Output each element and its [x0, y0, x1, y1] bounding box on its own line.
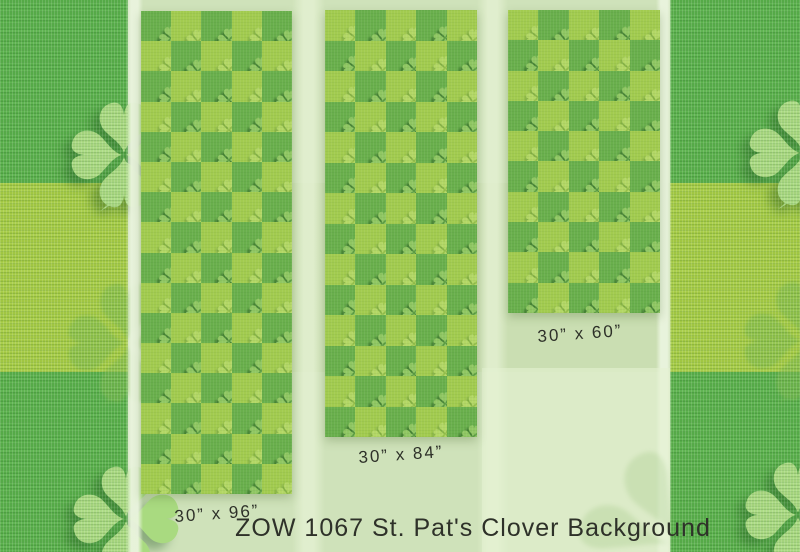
- pattern-cell: [416, 346, 446, 377]
- clover-icon: [356, 285, 385, 315]
- clover-icon: [262, 192, 292, 222]
- clover-icon: [325, 346, 355, 376]
- pattern-cell: [141, 434, 171, 464]
- clover-icon: [539, 10, 568, 40]
- pattern-cell: [171, 102, 201, 132]
- clover-icon: [630, 222, 660, 252]
- pattern-cell: [262, 222, 292, 252]
- clover-icon: [388, 12, 414, 39]
- pattern-cell: [447, 193, 477, 224]
- pattern-cell: [508, 192, 538, 222]
- clover-icon: [203, 375, 229, 402]
- pattern-cell: [447, 224, 477, 255]
- pattern-cell: [630, 101, 660, 131]
- clover-icon: [417, 102, 445, 131]
- pattern-cell: [508, 101, 538, 131]
- clover-icon: [388, 378, 414, 405]
- clover-icon: [356, 376, 385, 406]
- clover-icon: [508, 161, 538, 191]
- clover-icon: [447, 102, 477, 133]
- clover-icon: [262, 132, 292, 162]
- clover-icon: [233, 374, 261, 403]
- clover-icon: [600, 71, 628, 100]
- clover-icon: [262, 434, 292, 464]
- clover-icon: [571, 133, 597, 160]
- pattern-cell: [416, 163, 446, 194]
- pattern-cell: [538, 71, 568, 101]
- pattern-cell: [538, 252, 568, 282]
- clover-icon: [141, 102, 171, 132]
- pattern-cell: [630, 161, 660, 191]
- pattern-cell: [630, 192, 660, 222]
- pattern-cell: [201, 132, 231, 162]
- clover-icon: [630, 283, 660, 313]
- clover-icon: [508, 10, 538, 40]
- clover-icon: [172, 223, 201, 253]
- clover-icon: [571, 163, 597, 190]
- clover-icon: [233, 102, 261, 131]
- pattern-cell: [386, 10, 416, 41]
- pattern-cell: [141, 403, 171, 433]
- pattern-cell: [232, 192, 262, 222]
- pattern-cell: [508, 10, 538, 40]
- light-gap-strip: [292, 0, 325, 552]
- pattern-cell: [171, 434, 201, 464]
- clover-icon: [141, 11, 171, 41]
- clover-icon: [172, 72, 201, 102]
- clover-icon: [447, 71, 477, 102]
- clover-icon: [508, 252, 538, 282]
- pattern-cell: [508, 131, 538, 161]
- clover-icon: [233, 42, 261, 71]
- pattern-cell: [201, 192, 231, 222]
- clover-icon: [172, 253, 201, 283]
- clover-icon: [447, 407, 477, 438]
- pattern-cell: [262, 464, 292, 494]
- clover-icon: [172, 162, 201, 192]
- clover-icon: [447, 41, 477, 72]
- clover-icon: [141, 434, 171, 464]
- clover-icon: [417, 194, 445, 223]
- pattern-cell: [538, 101, 568, 131]
- pattern-cell: [416, 41, 446, 72]
- pattern-cell: [630, 222, 660, 252]
- clover-icon: [141, 253, 171, 283]
- pattern-cell: [416, 132, 446, 163]
- clover-icon: [325, 71, 355, 101]
- pattern-cell: [171, 222, 201, 252]
- clover-icon: [233, 193, 261, 222]
- pattern-cell: [262, 313, 292, 343]
- clover-icon: [262, 41, 292, 71]
- clover-icon: [508, 283, 538, 313]
- pattern-cell: [447, 132, 477, 163]
- pattern-cell: [599, 161, 629, 191]
- clover-icon: [678, 390, 798, 515]
- pattern-cell: [262, 403, 292, 433]
- pattern-cell: [201, 313, 231, 343]
- clover-icon: [539, 132, 568, 162]
- pattern-cell: [232, 283, 262, 313]
- pattern-cell: [232, 41, 262, 71]
- clover-icon: [172, 283, 201, 313]
- clover-icon: [417, 407, 445, 436]
- clover-icon: [417, 133, 445, 162]
- pattern-cell: [386, 285, 416, 316]
- pattern-cell: [141, 132, 171, 162]
- pattern-cell: [569, 131, 599, 161]
- clover-icon: [203, 314, 229, 341]
- clover-icon: [325, 132, 355, 162]
- pattern-cell: [325, 407, 355, 438]
- pattern-cell: [232, 71, 262, 101]
- pattern-cell: [171, 373, 201, 403]
- pattern-cell: [416, 71, 446, 102]
- clover-icon: [325, 41, 355, 71]
- pattern-cell: [630, 10, 660, 40]
- clover-icon: [388, 134, 414, 161]
- clover-icon: [233, 313, 261, 342]
- clover-icon: [388, 286, 414, 313]
- pattern-cell: [232, 132, 262, 162]
- pattern-cell: [171, 253, 201, 283]
- pattern-cell: [232, 434, 262, 464]
- clover-icon: [417, 11, 445, 40]
- clover-icon: [447, 346, 477, 377]
- pattern-cell: [201, 162, 231, 192]
- pattern-cell: [538, 222, 568, 252]
- clover-icon: [571, 284, 597, 311]
- clover-icon: [571, 103, 597, 130]
- clover-icon: [356, 193, 385, 223]
- clover-icon: [417, 316, 445, 345]
- clover-icon: [325, 254, 355, 284]
- pattern-cell: [508, 71, 538, 101]
- product-title: ZOW 1067 St. Pat's Clover Background: [235, 514, 711, 543]
- pattern-cell: [416, 407, 446, 438]
- pattern-cell: [262, 41, 292, 71]
- pattern-cell: [447, 71, 477, 102]
- clover-icon: [447, 163, 477, 194]
- clover-icon: [417, 255, 445, 284]
- clover-icon: [233, 72, 261, 101]
- pattern-cell: [325, 254, 355, 285]
- clover-icon: [417, 72, 445, 101]
- clover-icon: [447, 376, 477, 407]
- pattern-cell: [232, 11, 262, 41]
- pattern-cell: [141, 222, 171, 252]
- clover-icon: [325, 285, 355, 315]
- clover-icon: [172, 404, 201, 434]
- clover-icon: [417, 163, 445, 192]
- pattern-cell: [171, 41, 201, 71]
- clover-icon: [630, 192, 660, 222]
- pattern-cell: [232, 343, 262, 373]
- clover-icon: [388, 256, 414, 283]
- pattern-cell: [569, 40, 599, 70]
- pattern-cell: [171, 11, 201, 41]
- pattern-cell: [508, 222, 538, 252]
- clover-icon: [172, 132, 201, 162]
- pattern-cell: [447, 254, 477, 285]
- clover-icon: [262, 11, 292, 41]
- pattern-cell: [569, 161, 599, 191]
- pattern-cell: [447, 407, 477, 438]
- pattern-cell: [262, 283, 292, 313]
- clover-icon: [630, 71, 660, 101]
- clover-icon: [233, 404, 261, 433]
- clover-icon: [141, 464, 171, 494]
- pattern-cell: [232, 403, 262, 433]
- clover-icon: [233, 253, 261, 282]
- clover-icon: [262, 253, 292, 283]
- pattern-cell: [201, 102, 231, 132]
- pattern-cell: [171, 71, 201, 101]
- clover-icon: [172, 313, 201, 343]
- clover-icon: [141, 192, 171, 222]
- pattern-cell: [262, 11, 292, 41]
- clover-icon: [600, 162, 628, 191]
- clover-icon: [356, 407, 385, 437]
- clover-icon: [325, 224, 355, 254]
- clover-icon: [233, 464, 261, 493]
- pattern-cell: [355, 193, 385, 224]
- pattern-cell: [447, 163, 477, 194]
- pattern-cell: [232, 313, 262, 343]
- clover-icon: [172, 464, 201, 494]
- pattern-cell: [599, 192, 629, 222]
- clover-icon: [571, 42, 597, 69]
- pattern-cell: [538, 10, 568, 40]
- clover-icon: [262, 343, 292, 373]
- clover-icon: [447, 224, 477, 255]
- pattern-cell: [569, 101, 599, 131]
- pattern-cell: [262, 192, 292, 222]
- pattern-cell: [171, 132, 201, 162]
- pattern-cell: [141, 41, 171, 71]
- clover-icon: [630, 40, 660, 70]
- pattern-cell: [201, 11, 231, 41]
- clover-icon: [325, 376, 355, 406]
- pattern-cell: [569, 222, 599, 252]
- clover-icon: [141, 132, 171, 162]
- pattern-cell: [447, 376, 477, 407]
- pattern-cell: [171, 464, 201, 494]
- clover-icon: [356, 224, 385, 254]
- pattern-cell: [141, 102, 171, 132]
- pattern-cell: [386, 315, 416, 346]
- clover-icon: [203, 405, 229, 432]
- clover-icon: [203, 194, 229, 221]
- banner-30x84: [325, 10, 477, 437]
- clover-icon: [600, 192, 628, 221]
- pattern-cell: [508, 161, 538, 191]
- pattern-cell: [416, 224, 446, 255]
- clover-icon: [539, 71, 568, 101]
- pattern-cell: [630, 40, 660, 70]
- clover-icon: [325, 315, 355, 345]
- clover-icon: [262, 162, 292, 192]
- clover-icon: [356, 71, 385, 101]
- pattern-cell: [262, 162, 292, 192]
- pattern-cell: [630, 283, 660, 313]
- pattern-cell: [141, 373, 171, 403]
- clover-icon: [571, 254, 597, 281]
- pattern-cell: [355, 10, 385, 41]
- clover-icon: [388, 103, 414, 130]
- pattern-cell: [201, 343, 231, 373]
- pattern-cell: [141, 71, 171, 101]
- pattern-cell: [569, 283, 599, 313]
- clover-icon: [325, 407, 355, 437]
- clover-icon: [233, 344, 261, 373]
- pattern-cell: [171, 343, 201, 373]
- clover-icon: [630, 10, 660, 40]
- pattern-cell: [599, 40, 629, 70]
- pattern-cell: [262, 434, 292, 464]
- pattern-cell: [171, 283, 201, 313]
- clover-icon: [203, 465, 229, 492]
- pattern-cell: [569, 192, 599, 222]
- clover-icon: [630, 131, 660, 161]
- pattern-cell: [599, 101, 629, 131]
- clover-icon: [356, 102, 385, 132]
- clover-icon: [508, 101, 538, 131]
- pattern-cell: [171, 162, 201, 192]
- clover-icon: [172, 343, 201, 373]
- clover-icon: [356, 346, 385, 376]
- clover-icon: [508, 131, 538, 161]
- clover-icon: [508, 40, 538, 70]
- clover-icon: [233, 283, 261, 312]
- clover-icon: [203, 73, 229, 100]
- pattern-cell: [325, 71, 355, 102]
- pattern-cell: [325, 132, 355, 163]
- pattern-cell: [325, 224, 355, 255]
- clover-icon: [539, 41, 568, 71]
- pattern-cell: [447, 10, 477, 41]
- clover-icon: [141, 313, 171, 343]
- clover-icon: [262, 313, 292, 343]
- pattern-cell: [141, 343, 171, 373]
- pattern-cell: [232, 222, 262, 252]
- pattern-cell: [141, 192, 171, 222]
- clover-icon: [600, 101, 628, 130]
- clover-icon: [203, 43, 229, 70]
- clover-icon: [172, 434, 201, 464]
- clover-icon: [233, 162, 261, 191]
- pattern-cell: [325, 163, 355, 194]
- clover-icon: [388, 195, 414, 222]
- pattern-cell: [416, 10, 446, 41]
- pattern-cell: [355, 254, 385, 285]
- pattern-cell: [538, 161, 568, 191]
- clover-icon: [447, 254, 477, 285]
- clover-icon: [262, 222, 292, 252]
- pattern-cell: [355, 102, 385, 133]
- clover-icon: [356, 163, 385, 193]
- clover-icon: [600, 11, 628, 40]
- pattern-cell: [416, 285, 446, 316]
- pattern-cell: [201, 464, 231, 494]
- clover-icon: [417, 285, 445, 314]
- clover-icon: [262, 464, 292, 494]
- pattern-cell: [325, 376, 355, 407]
- clover-icon: [262, 373, 292, 403]
- pattern-cell: [569, 252, 599, 282]
- clover-icon: [600, 253, 628, 282]
- pattern-cell: [416, 193, 446, 224]
- clover-icon: [668, 200, 800, 341]
- clover-icon: [388, 347, 414, 374]
- pattern-cell: [416, 376, 446, 407]
- pattern-cell: [201, 71, 231, 101]
- clover-icon: [172, 41, 201, 71]
- clover-icon: [233, 434, 261, 463]
- clover-icon: [571, 224, 597, 251]
- clover-icon: [539, 101, 568, 131]
- pattern-cell: [386, 163, 416, 194]
- pattern-cell: [630, 71, 660, 101]
- clover-icon: [203, 133, 229, 160]
- pattern-cell: [201, 222, 231, 252]
- pattern-cell: [171, 313, 201, 343]
- pattern-cell: [599, 222, 629, 252]
- pattern-cell: [171, 403, 201, 433]
- pattern-cell: [386, 407, 416, 438]
- pattern-cell: [599, 252, 629, 282]
- clover-icon: [417, 41, 445, 70]
- pattern-cell: [599, 71, 629, 101]
- clover-icon: [539, 222, 568, 252]
- clover-icon: [262, 102, 292, 132]
- clover-icon: [203, 345, 229, 372]
- pattern-cell: [630, 252, 660, 282]
- clover-icon: [630, 252, 660, 282]
- clover-icon: [262, 71, 292, 101]
- clover-icon: [571, 72, 597, 99]
- right-texture-strip: [670, 0, 800, 552]
- pattern-cell: [355, 163, 385, 194]
- pattern-cell: [386, 254, 416, 285]
- pattern-cell: [355, 407, 385, 438]
- clover-icon: [539, 283, 568, 313]
- clover-icon: [417, 377, 445, 406]
- pattern-cell: [355, 71, 385, 102]
- pattern-cell: [262, 102, 292, 132]
- pattern-cell: [386, 346, 416, 377]
- pattern-cell: [538, 40, 568, 70]
- clover-icon: [388, 73, 414, 100]
- pattern-cell: [355, 224, 385, 255]
- pattern-cell: [325, 315, 355, 346]
- pattern-cell: [201, 403, 231, 433]
- pattern-cell: [201, 434, 231, 464]
- clover-icon: [172, 374, 201, 404]
- pattern-cell: [538, 192, 568, 222]
- clover-icon: [682, 28, 800, 153]
- size-label-30x84: 30” x 84”: [358, 442, 444, 468]
- pattern-cell: [355, 376, 385, 407]
- pattern-cell: [569, 71, 599, 101]
- pattern-cell: [538, 131, 568, 161]
- clover-icon: [508, 222, 538, 252]
- pattern-cell: [201, 373, 231, 403]
- pattern-cell: [416, 102, 446, 133]
- pattern-cell: [447, 346, 477, 377]
- pattern-cell: [447, 41, 477, 72]
- clover-icon: [141, 283, 171, 313]
